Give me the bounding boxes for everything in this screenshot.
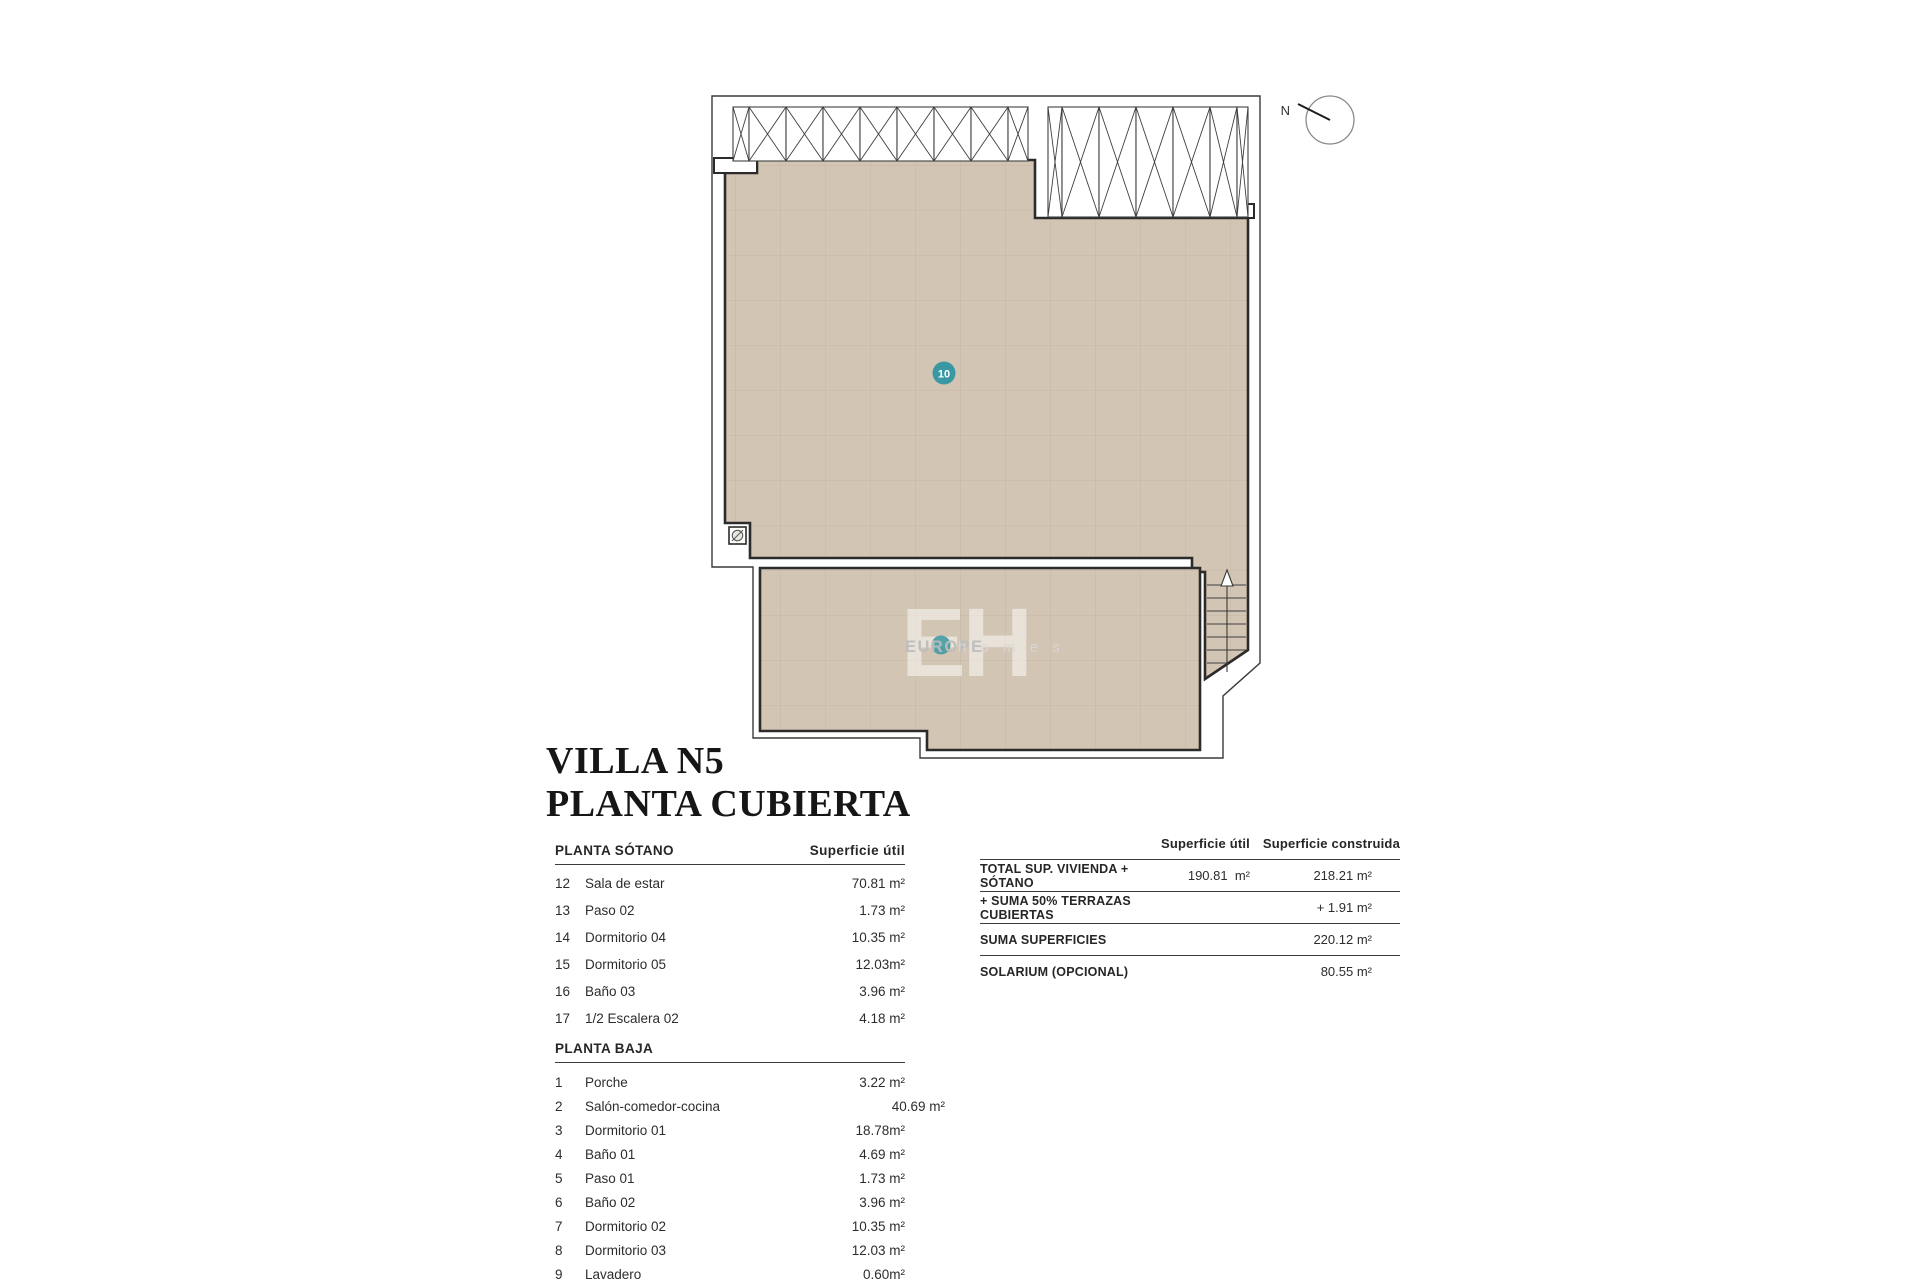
- table-row: 2Salón-comedor-cocina40.69 m²: [555, 1094, 905, 1118]
- pergola-hatch-left-icon: [733, 107, 1028, 161]
- table-row: 7Dormitorio 0210.35 m²: [555, 1214, 905, 1238]
- page-title: VILLA N5 PLANTA CUBIERTA: [546, 740, 911, 825]
- sotano-rows: 12Sala de estar70.81 m² 13Paso 021.73 m²…: [555, 865, 905, 1032]
- watermark-homes: h o m e s: [958, 639, 1065, 656]
- page-title-line1: VILLA N5: [546, 740, 911, 783]
- table-row: 13Paso 021.73 m²: [555, 897, 905, 924]
- sotano-header-row: PLANTA SÓTANO Superficie útil: [555, 843, 905, 865]
- areas-table: PLANTA SÓTANO Superficie útil 12Sala de …: [555, 843, 905, 1286]
- table-row: 171/2 Escalera 024.18 m²: [555, 1005, 905, 1032]
- baja-header: PLANTA BAJA: [555, 1041, 653, 1056]
- table-row: 1Porche3.22 m²: [555, 1070, 905, 1094]
- table-row: 15Dormitorio 0512.03m²: [555, 951, 905, 978]
- table-row: 6Baño 023.96 m²: [555, 1190, 905, 1214]
- summary-col2-header: Superficie construida: [1250, 836, 1400, 851]
- summary-row: TOTAL SUP. VIVIENDA + SÓTANO 190.81 m² 2…: [980, 860, 1400, 892]
- baja-rows: 1Porche3.22 m² 2Salón-comedor-cocina40.6…: [555, 1063, 905, 1286]
- sotano-header: PLANTA SÓTANO: [555, 843, 674, 858]
- page-title-line2: PLANTA CUBIERTA: [546, 783, 911, 826]
- table-row: 5Paso 011.73 m²: [555, 1166, 905, 1190]
- room-badge-number: 10: [938, 369, 950, 381]
- table-row: 3Dormitorio 0118.78m²: [555, 1118, 905, 1142]
- table-row: 8Dormitorio 0312.03 m²: [555, 1238, 905, 1262]
- pergola-hatch-right-icon: [1048, 107, 1248, 217]
- baja-header-row: PLANTA BAJA: [555, 1041, 905, 1063]
- page: { "title": { "line1": "VILLA N5", "line2…: [0, 0, 1920, 1280]
- table-row: 12Sala de estar70.81 m²: [555, 870, 905, 897]
- summary-col1-header: Superficie útil: [1140, 836, 1250, 851]
- north-indicator-icon: N: [1281, 96, 1354, 144]
- room-badge: 10: [933, 362, 956, 385]
- summary-table: Superficie útil Superficie construida TO…: [980, 836, 1400, 987]
- floor-plan-drawing: EH EUROPE h o m e s 10 N: [690, 75, 1470, 800]
- drain-icon: [729, 527, 746, 544]
- summary-row: SUMA SUPERFICIES 220.12 m²: [980, 924, 1400, 956]
- summary-row: + SUMA 50% TERRAZAS CUBIERTAS + 1.91 m²: [980, 892, 1400, 924]
- table-row: 9Lavadero0.60m²: [555, 1262, 905, 1286]
- table-row: 4Baño 014.69 m²: [555, 1142, 905, 1166]
- floor-plan: EH EUROPE h o m e s 10 N: [690, 75, 1470, 800]
- summary-header-row: Superficie útil Superficie construida: [980, 836, 1400, 860]
- table-row: 16Baño 033.96 m²: [555, 978, 905, 1005]
- north-label: N: [1281, 103, 1290, 118]
- table-row: 14Dormitorio 0410.35 m²: [555, 924, 905, 951]
- summary-row: SOLARIUM (OPCIONAL) 80.55 m²: [980, 956, 1400, 987]
- sotano-col-header: Superficie útil: [810, 843, 905, 858]
